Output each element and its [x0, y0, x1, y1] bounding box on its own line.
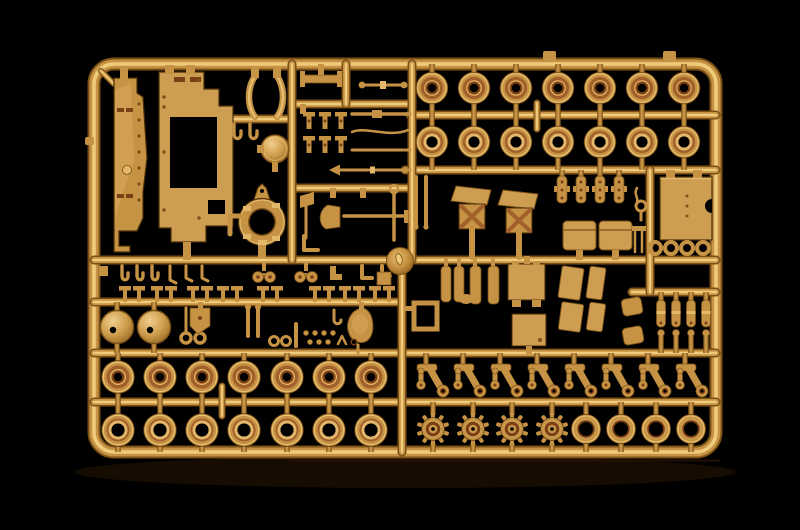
stowage-box-1 [508, 264, 545, 300]
hull-panel-wide-hole [170, 117, 217, 188]
curved-panel-2 [622, 325, 645, 345]
shovel-grip [404, 210, 409, 223]
flag-bracket-stub [198, 302, 203, 310]
spear-band [370, 167, 375, 174]
hull-panel-wide-hole2 [208, 200, 225, 214]
mantlet-ring-stub [258, 245, 266, 257]
square-frame-part [414, 303, 437, 329]
stowage-box-2-stub [526, 346, 532, 354]
fender-tower-plate-l [451, 186, 491, 205]
angled-panel-3 [558, 302, 584, 333]
left-sq-stub [99, 266, 108, 276]
center-pad [377, 272, 391, 285]
photo-stage: Photograph of a tan injection-molded pla… [0, 0, 800, 530]
sprue-photo [0, 0, 800, 530]
flag-bracket-dot [198, 316, 202, 320]
teardrop-stub [359, 302, 364, 310]
square-frame-stub [405, 306, 414, 311]
hatch-disc-stub [272, 162, 278, 172]
tool-rod-a-bulge [372, 110, 382, 118]
stowage-pouch-a [563, 221, 596, 250]
fender-tower-plate-r [498, 190, 538, 209]
rod-knob-band [380, 81, 386, 89]
angled-panel-4 [586, 302, 606, 332]
hatch-disc [261, 135, 289, 163]
shovel-blade [320, 205, 340, 229]
mantlet-ring-bracket-hole [260, 189, 264, 193]
teardrop-shade [352, 314, 368, 334]
curved-panel-1 [621, 296, 644, 316]
reflection-line [290, 460, 720, 462]
hull-panel-narrow-stub [120, 68, 128, 79]
engine-deck-panel [660, 177, 712, 240]
tool-bracket [303, 75, 339, 83]
teardrop-hole [351, 339, 357, 345]
plank-oval [459, 294, 473, 304]
stowage-pouch-b [599, 221, 632, 250]
stowage-box-2-dot [538, 338, 542, 342]
injection-gate-boss [387, 248, 414, 275]
mantlet-ring-hole [250, 210, 275, 235]
hull-panel-narrow-knob [123, 166, 132, 175]
hatch-disc-tab [257, 145, 264, 153]
angled-panel-1 [558, 266, 584, 301]
